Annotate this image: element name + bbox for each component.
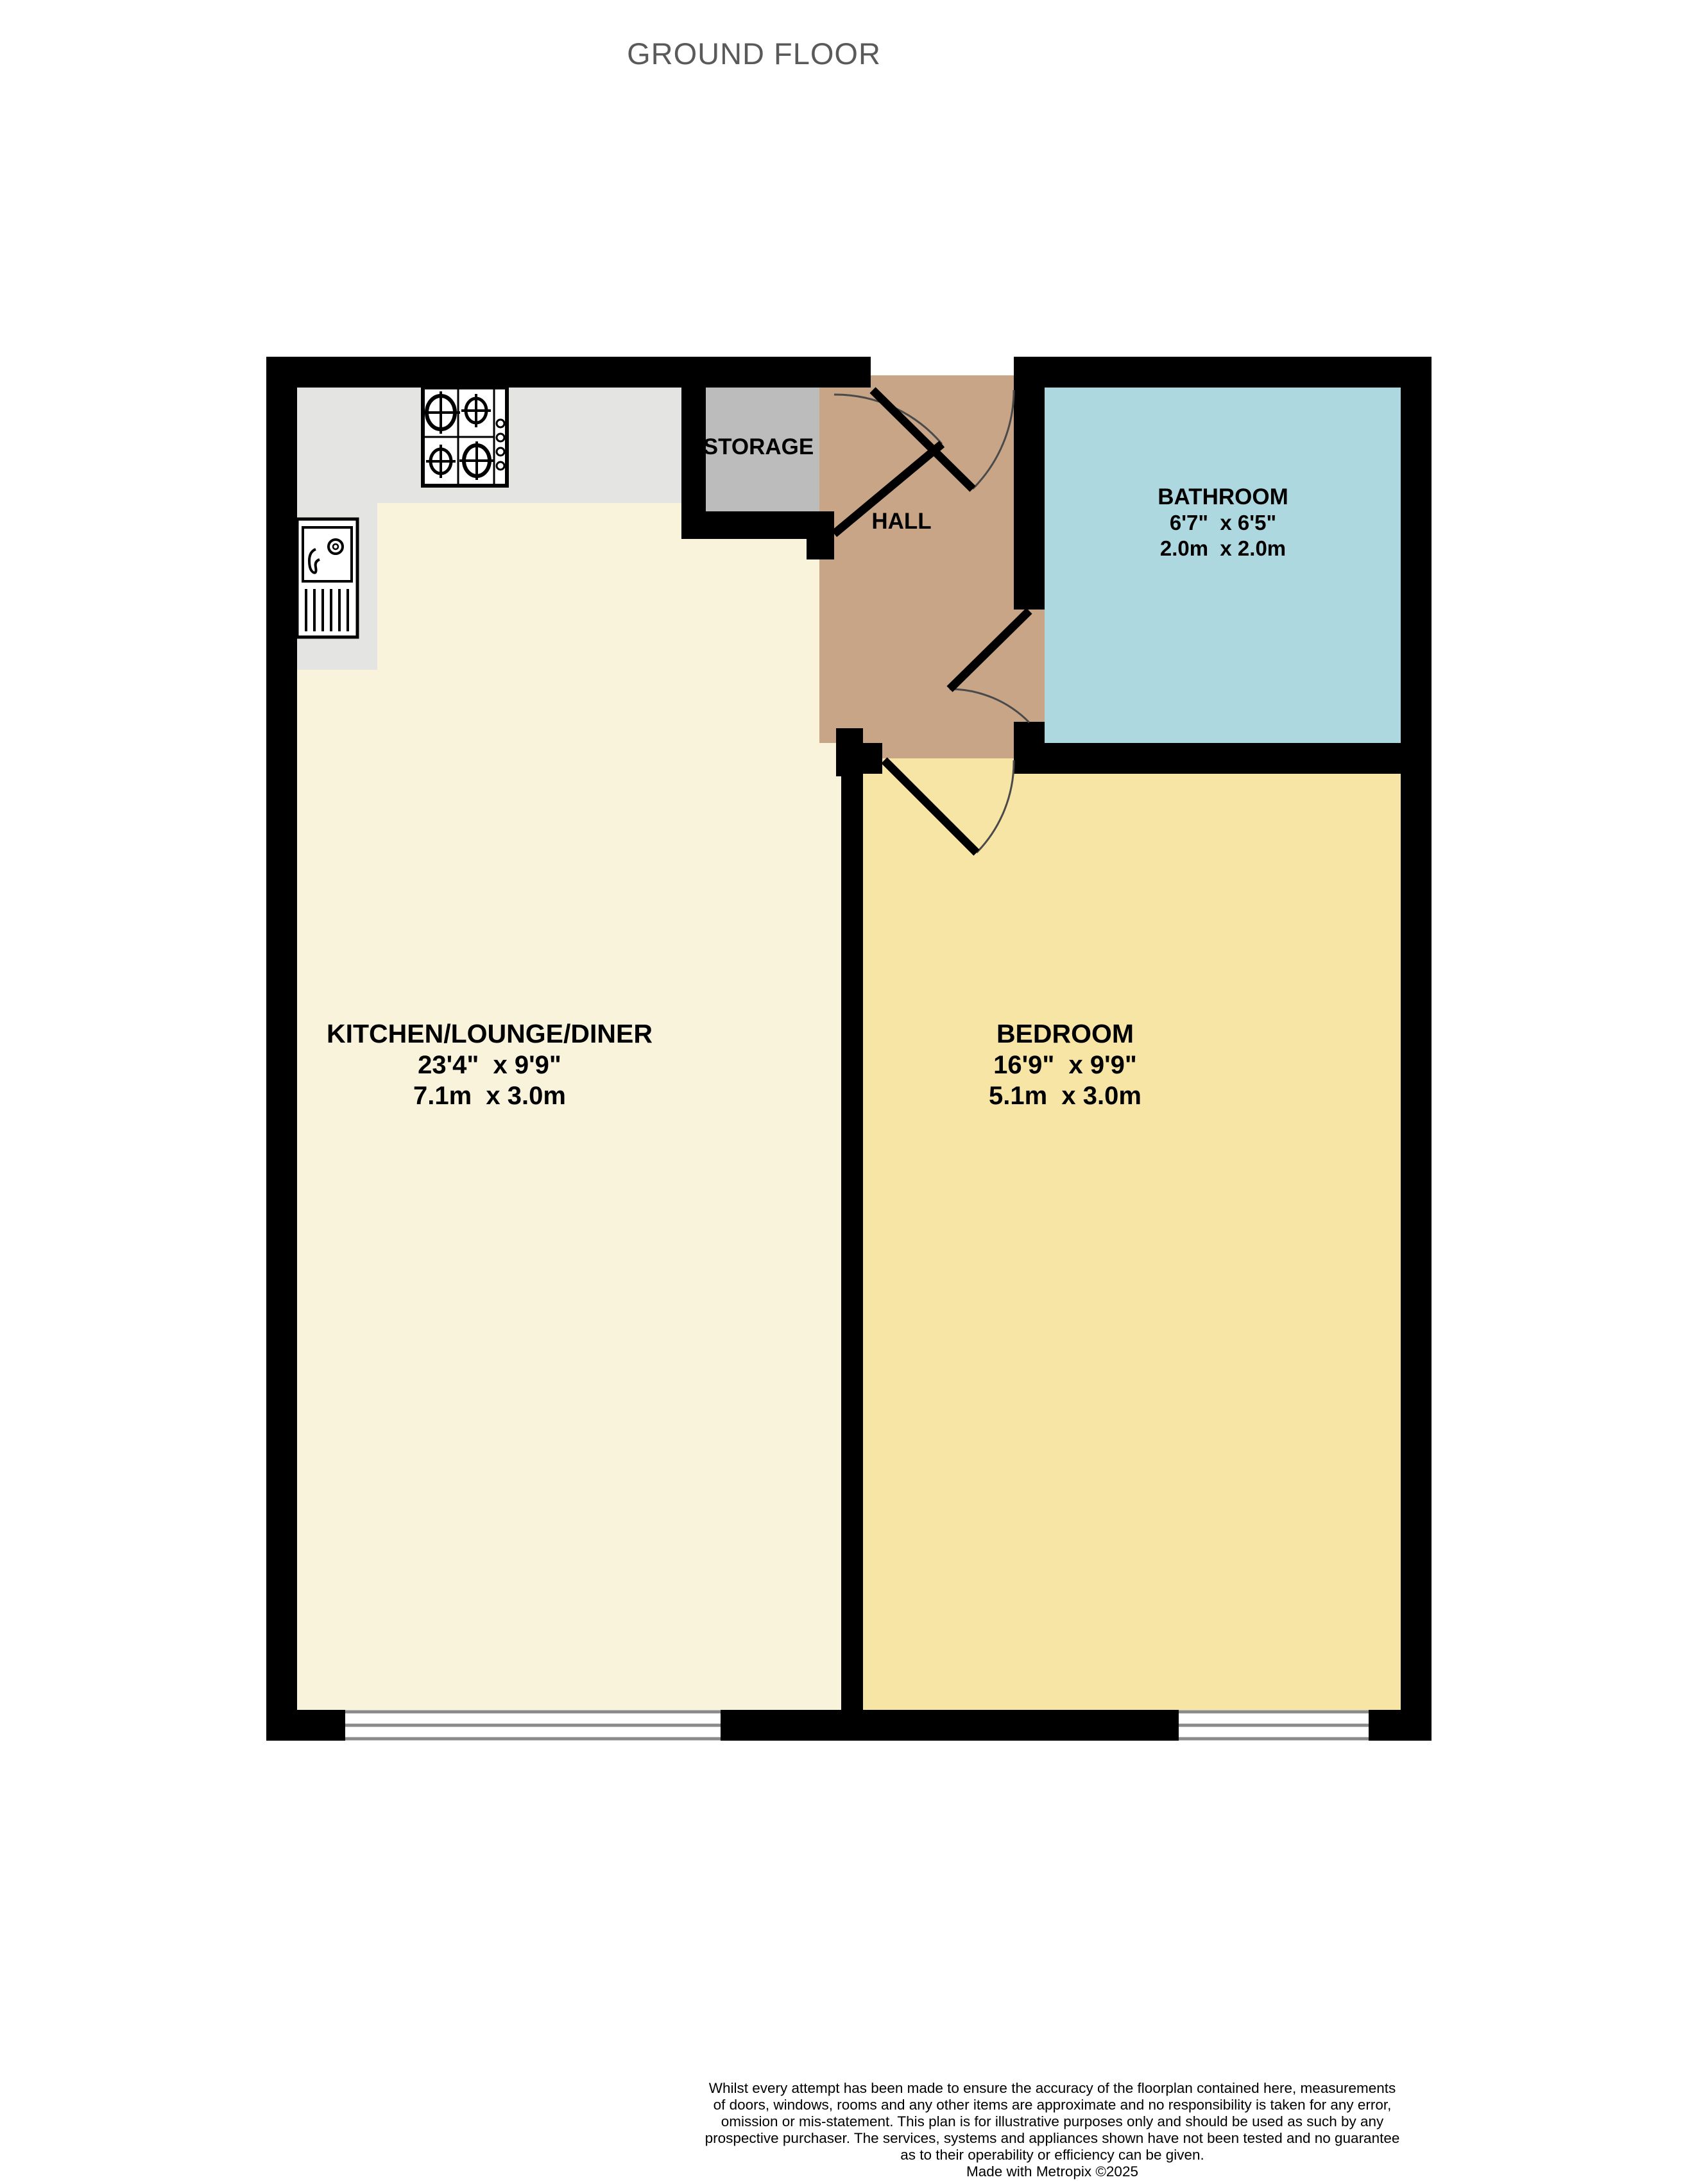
bathroom-label: BATHROOM — [1158, 484, 1288, 509]
wall-storage-door-jamb — [807, 511, 834, 559]
wall-kitchen-bedroom-divider — [841, 731, 863, 1710]
disclaimer-line: Whilst every attempt has been made to en… — [709, 2080, 1396, 2096]
disclaimer-line: prospective purchaser. The services, sys… — [705, 2130, 1400, 2146]
kitchen-label: KITCHEN/LOUNGE/DINER — [327, 1019, 653, 1048]
room-bedroom-floor — [863, 731, 1401, 1710]
disclaimer-line: of doors, windows, rooms and any other i… — [714, 2097, 1392, 2113]
metropix-credit: Made with Metropix ©2025 — [966, 2163, 1138, 2180]
wall-bathroom-left — [1014, 388, 1045, 610]
bathroom-dimensions-metric: 2.0m x 2.0m — [1160, 536, 1286, 560]
sink-icon — [297, 519, 357, 637]
disclaimer-block: Whilst every attempt has been made to en… — [705, 2080, 1400, 2180]
room-bathroom-floor — [1045, 388, 1401, 743]
stove-hob-icon — [422, 388, 507, 486]
bedroom-dimensions-imperial: 16'9" x 9'9" — [993, 1051, 1137, 1079]
bedroom-label: BEDROOM — [996, 1019, 1134, 1048]
window-kitchen-icon — [345, 1710, 721, 1741]
wall-top-right-segment — [1014, 357, 1432, 388]
wall-top-left-segment — [266, 357, 871, 388]
hall-label: HALL — [871, 509, 931, 534]
disclaimer-line: omission or mis-statement. This plan is … — [721, 2113, 1384, 2129]
room-kitchen-floor — [297, 388, 841, 1710]
kitchen-dimensions-imperial: 23'4" x 9'9" — [418, 1051, 561, 1079]
wall-right-exterior — [1401, 357, 1432, 1741]
kitchen-dimensions-metric: 7.1m x 3.0m — [413, 1082, 566, 1110]
wall-left-exterior — [266, 357, 297, 1741]
bedroom-dimensions-metric: 5.1m x 3.0m — [989, 1082, 1141, 1110]
floorplan-canvas: GROUND FLOOR — [0, 0, 1701, 2184]
storage-label: STORAGE — [703, 434, 814, 459]
wall-bathroom-bottom — [1014, 743, 1401, 774]
page-title: GROUND FLOOR — [627, 37, 881, 71]
window-bedroom-icon — [1179, 1710, 1369, 1741]
bathroom-dimensions-imperial: 6'7" x 6'5" — [1170, 511, 1276, 534]
disclaimer-line: as to their operability or efficiency ca… — [900, 2147, 1204, 2163]
